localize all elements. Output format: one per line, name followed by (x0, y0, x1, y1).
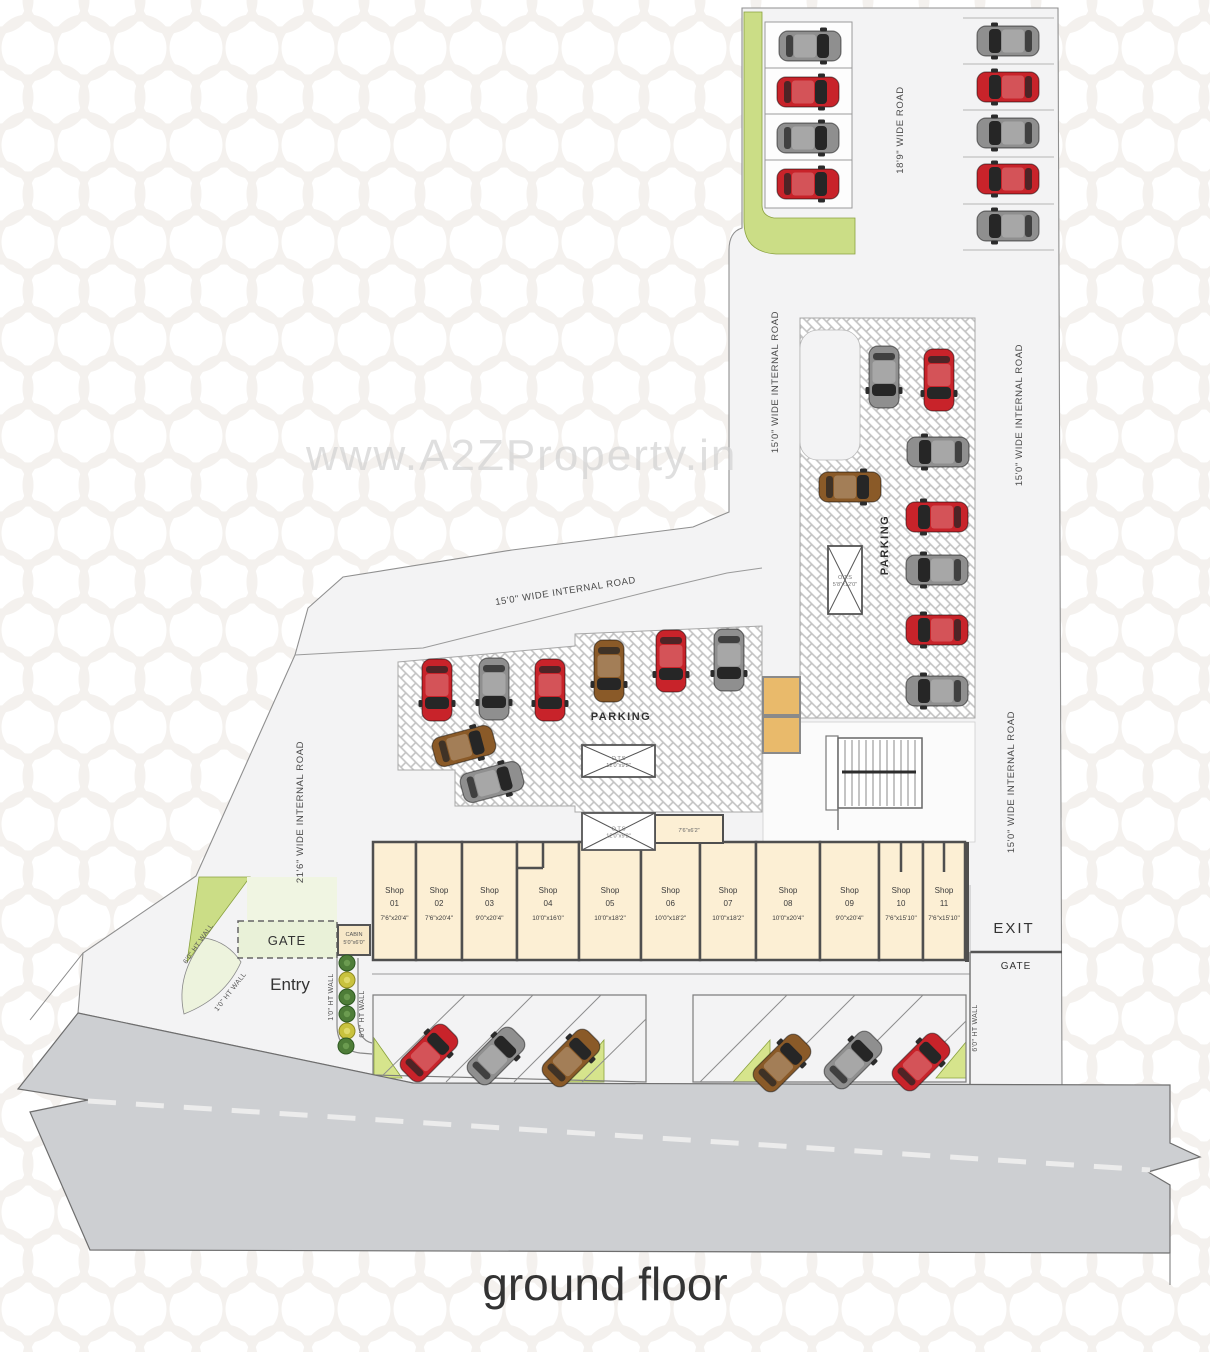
car-gray (977, 115, 1039, 152)
car-gray (907, 434, 969, 471)
ots-label: O.T.S (612, 827, 626, 833)
shop-name: Shop (385, 886, 404, 895)
road-label: 15'0" WIDE INTERNAL ROAD (1006, 711, 1017, 853)
shop-name: Shop (935, 886, 954, 895)
shop-dims: 7'6"x15'10" (928, 915, 960, 922)
shop-name: Shop (661, 886, 680, 895)
car-red (977, 69, 1039, 106)
ots-dims: 5'8"x12'0" (833, 582, 857, 588)
cabin-dims: 5'0"x6'0" (343, 940, 364, 946)
shop-number: 01 (390, 899, 399, 908)
road-label: 15'0" WIDE INTERNAL ROAD (770, 311, 781, 453)
shop-dims: 10'0"x18'2" (594, 915, 626, 922)
shop-cell: Shop0610'0"x18'2" (641, 842, 700, 960)
ots-dims: 12'0"x9'2" (606, 763, 630, 769)
car-gray (906, 552, 968, 589)
ots-box: O.T.S12'0"x9'2" (582, 745, 655, 777)
shop-number: 10 (897, 899, 906, 908)
car-gray (906, 673, 968, 710)
shop-name: Shop (539, 886, 558, 895)
ots-box: O.T.S12'0"x9'2" (582, 813, 655, 850)
shop-dims: 7'6"x15'10" (885, 915, 917, 922)
ots-label: O.T.S (838, 575, 852, 581)
wall-label: 6'0" HT WALL (972, 1004, 979, 1051)
shop-number: 11 (940, 899, 949, 908)
gate-exit-label: GATE (1001, 961, 1031, 972)
shop-dims: 10'0"x18'2" (712, 915, 744, 922)
parking-label-right: PARKING (879, 515, 891, 575)
site-plan-canvas: Shop017'6"x20'4"Shop027'6"x20'4"Shop039'… (0, 0, 1210, 1352)
car-gray (977, 208, 1039, 245)
car-gray (711, 629, 748, 691)
road-label: 18'9" WIDE ROAD (895, 86, 906, 174)
shop-number: 08 (784, 899, 793, 908)
right-parking-aisle (800, 330, 860, 460)
shop-dims: 7'6"x20'4" (381, 915, 409, 922)
shop-number: 04 (544, 899, 553, 908)
shop-name: Shop (480, 886, 499, 895)
shop-cell: Shop0510'0"x18'2" (579, 842, 641, 960)
shop-name: Shop (601, 886, 620, 895)
car-brown (819, 469, 881, 506)
shop-name: Shop (430, 886, 449, 895)
shop-cell: Shop0410'0"x16'0" (517, 842, 579, 960)
car-gray (476, 658, 513, 720)
ots-label: O.T.S (612, 756, 626, 762)
shop-dims: 10'0"x20'4" (772, 915, 804, 922)
shop-number: 07 (724, 899, 733, 908)
parking-label-center: PARKING (591, 711, 651, 723)
car-red (777, 166, 839, 203)
car-gray (977, 23, 1039, 60)
wall-label: 1'0" HT WALL (328, 973, 335, 1020)
shop-name: Shop (892, 886, 911, 895)
floor-title: ground floor (482, 1258, 728, 1310)
shop-number: 02 (435, 899, 444, 908)
shop-number: 05 (606, 899, 615, 908)
shop-cell: Shop027'6"x20'4" (416, 842, 462, 960)
shop-cell: Shop017'6"x20'4" (373, 842, 416, 960)
shop-name: Shop (719, 886, 738, 895)
watermark-text: www.A2ZProperty.in (305, 431, 737, 480)
small-room-dims: 7'6"x6'2" (678, 828, 699, 834)
shop-number: 09 (845, 899, 854, 908)
tree-icon (339, 972, 355, 988)
wall-label: 6'0" HT WALL (359, 990, 366, 1037)
car-red (777, 74, 839, 111)
shop-dims: 10'0"x18'2" (655, 915, 687, 922)
shop-name: Shop (840, 886, 859, 895)
car-red (532, 659, 569, 721)
shop-cell: Shop099'0"x20'4" (820, 842, 879, 960)
car-gray (777, 120, 839, 157)
shops-row: Shop017'6"x20'4"Shop027'6"x20'4"Shop039'… (373, 842, 965, 960)
shop-dims: 9'0"x20'4" (836, 915, 864, 922)
road-label: 21'6" WIDE INTERNAL ROAD (295, 741, 306, 883)
tree-icon (339, 1006, 355, 1022)
car-red (906, 499, 968, 536)
shop-cell: Shop0810'0"x20'4" (756, 842, 820, 960)
shop-dims: 10'0"x16'0" (532, 915, 564, 922)
utility-box (763, 677, 800, 715)
cabin-label: CABIN (345, 932, 362, 938)
entry-label: Entry (270, 975, 310, 994)
ots-dims: 12'0"x9'2" (606, 834, 630, 840)
shop-number: 03 (485, 899, 494, 908)
tree-icon (339, 1023, 355, 1039)
tree-icon (338, 1038, 354, 1054)
car-brown (591, 640, 628, 702)
car-gray (866, 346, 903, 408)
ots-box: O.T.S5'8"x12'0" (828, 546, 862, 614)
shop-cell: Shop0710'0"x18'2" (700, 842, 756, 960)
gate-entry-label: GATE (268, 933, 306, 948)
tree-icon (339, 955, 355, 971)
car-red (921, 349, 958, 411)
car-red (977, 161, 1039, 198)
green-gate-corridor (247, 877, 337, 921)
exit-label: EXIT (993, 920, 1034, 937)
shop-dims: 9'0"x20'4" (476, 915, 504, 922)
utility-box (763, 717, 800, 753)
car-red (906, 612, 968, 649)
shop-cell: Shop039'0"x20'4" (462, 842, 517, 960)
tree-icon (339, 989, 355, 1005)
car-red (653, 630, 690, 692)
shop-dims: 7'6"x20'4" (425, 915, 453, 922)
shop-name: Shop (779, 886, 798, 895)
road-label: 15'0" WIDE INTERNAL ROAD (1014, 344, 1025, 486)
shop-number: 06 (666, 899, 675, 908)
car-red (419, 659, 456, 721)
car-gray (779, 28, 841, 65)
